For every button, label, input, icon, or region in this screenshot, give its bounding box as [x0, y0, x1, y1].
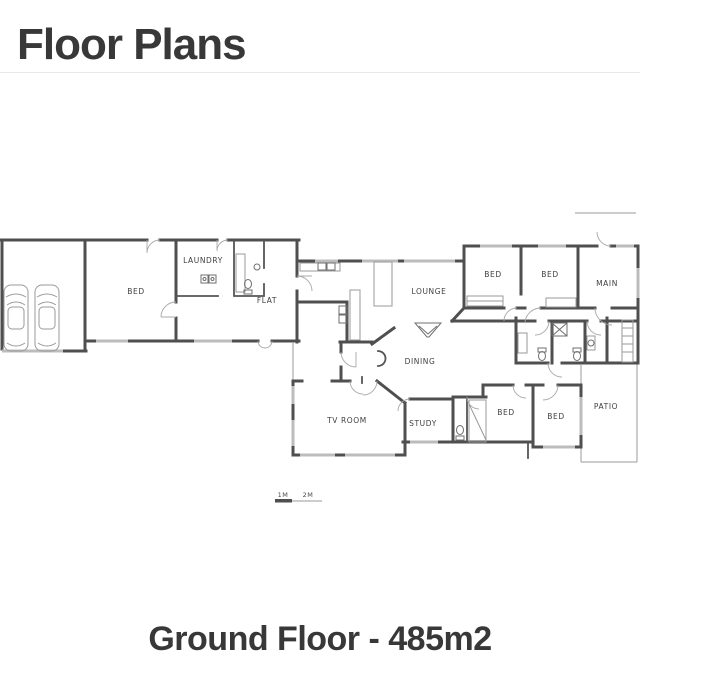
room-label-tv-room: TV ROOM	[326, 416, 367, 425]
floor-plan-svg: BED LAUNDRY FLAT LOUNGE BED BED MAIN DIN…	[0, 205, 660, 515]
car-icon	[35, 285, 59, 351]
shower-icon	[552, 323, 567, 336]
room-label-bed: BED	[484, 270, 501, 279]
room-label-patio: PATIO	[594, 402, 618, 411]
scale-bar: 1M 2M	[275, 491, 322, 503]
scale-bar-solid-segment	[275, 499, 292, 503]
scale-label-2m: 2M	[303, 491, 314, 499]
room-label-bed: BED	[497, 408, 514, 417]
scale-label-1m: 1M	[278, 491, 289, 499]
room-label-flat: FLAT	[257, 296, 277, 305]
floor-plan-image: BED LAUNDRY FLAT LOUNGE BED BED MAIN DIN…	[0, 205, 660, 515]
toilet-icon	[456, 426, 464, 441]
room-label-bed: BED	[127, 287, 144, 296]
divider	[0, 72, 640, 73]
toilet-icon	[573, 348, 581, 361]
room-label-lounge: LOUNGE	[411, 287, 446, 296]
laundry-appliance-icons	[201, 275, 216, 283]
room-label-bed: BED	[541, 270, 558, 279]
room-label-main: MAIN	[596, 279, 618, 288]
kitchen-sink-icon	[318, 263, 347, 323]
ceiling-feature-icon	[415, 323, 441, 337]
car-icon	[4, 285, 28, 351]
room-label-dining: DINING	[405, 357, 436, 366]
room-label-laundry: LAUNDRY	[183, 256, 223, 265]
room-label-study: STUDY	[409, 419, 437, 428]
floor-caption: Ground Floor - 485m2	[0, 620, 640, 659]
room-label-bed: BED	[547, 412, 564, 421]
toilet-icon	[538, 348, 546, 361]
page-title: Floor Plans	[17, 20, 246, 70]
